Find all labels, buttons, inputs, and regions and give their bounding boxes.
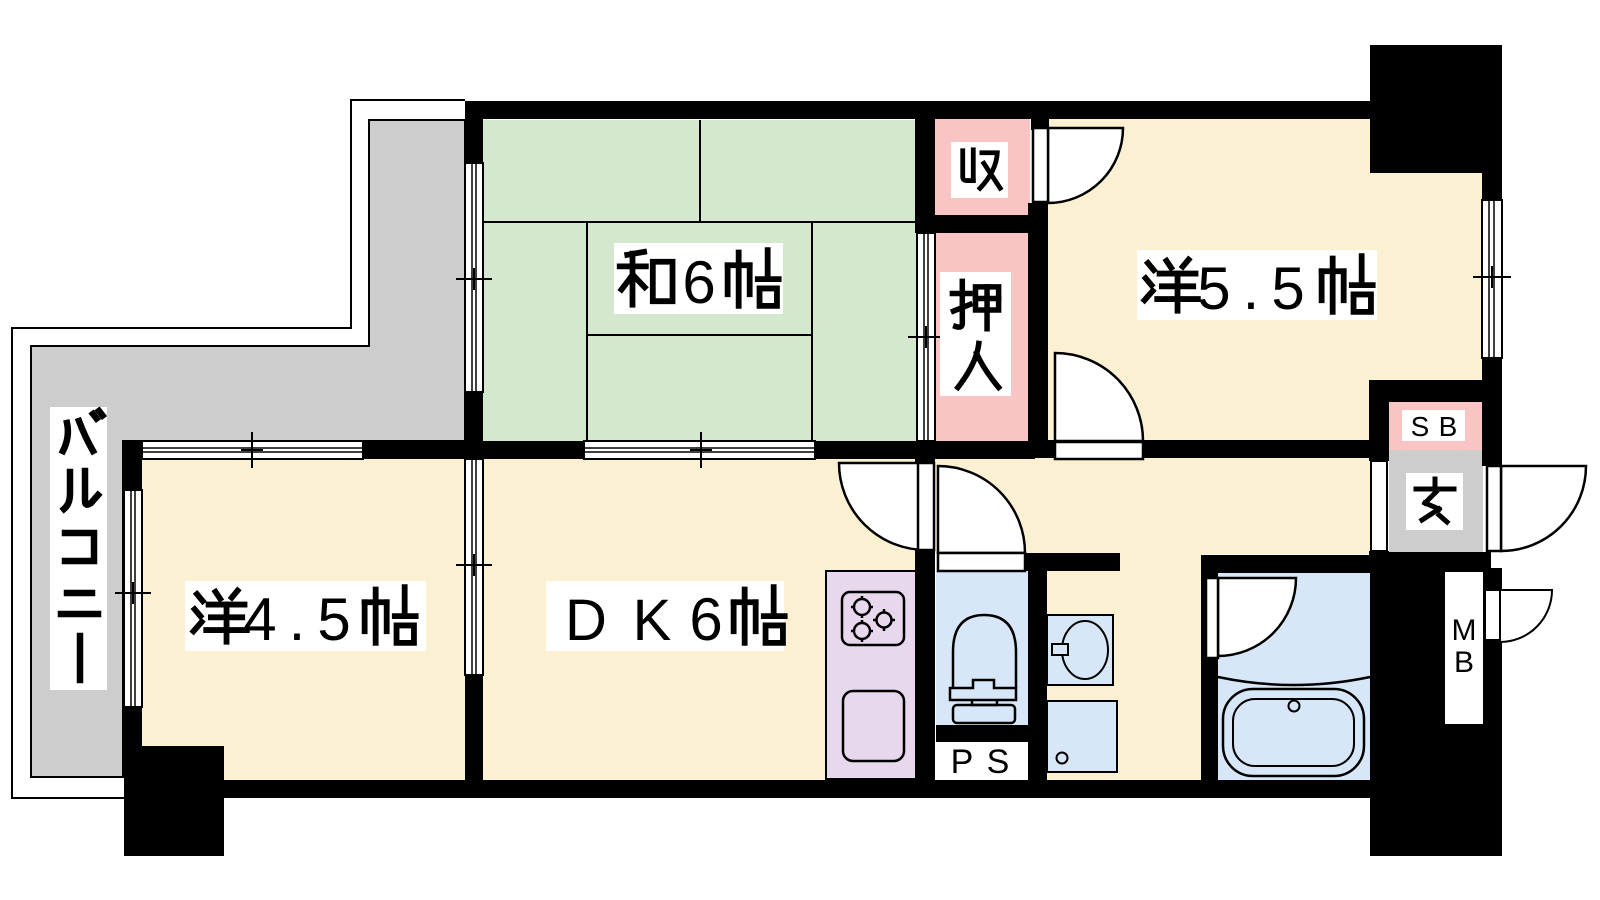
- svg-text:K: K: [633, 588, 672, 653]
- svg-text:S: S: [1411, 411, 1430, 442]
- svg-text:B: B: [1454, 646, 1474, 679]
- svg-text:P: P: [951, 743, 974, 781]
- svg-text:B: B: [1439, 411, 1458, 442]
- svg-text:5.5: 5.5: [1197, 255, 1316, 322]
- svg-text:6: 6: [682, 249, 715, 316]
- svg-text:6: 6: [689, 586, 722, 653]
- svg-text:M: M: [1452, 614, 1477, 647]
- svg-text:S: S: [987, 743, 1010, 781]
- svg-text:4.5: 4.5: [243, 586, 362, 653]
- svg-text:D: D: [565, 588, 607, 653]
